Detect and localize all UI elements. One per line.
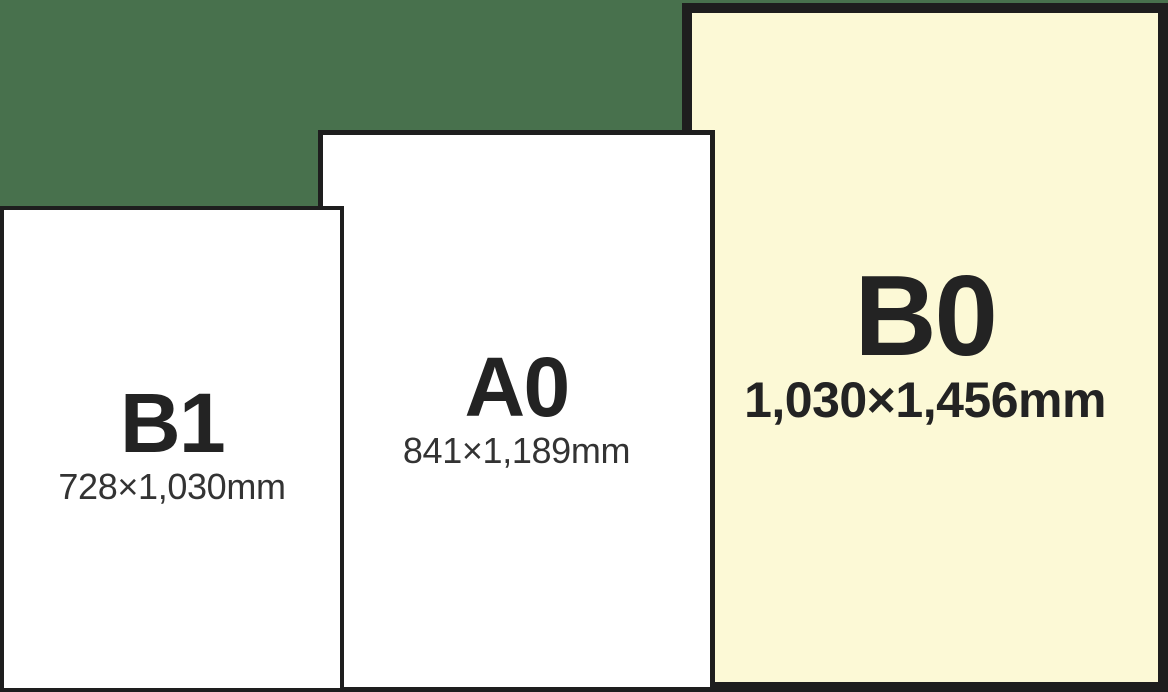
paper-a0-dimensions: 841×1,189mm xyxy=(323,433,710,469)
paper-b1-dimensions: 728×1,030mm xyxy=(4,469,340,505)
paper-b0-dimensions: 1,030×1,456mm xyxy=(692,375,1158,425)
paper-b1: B1 728×1,030mm xyxy=(0,206,344,692)
paper-b1-name: B1 xyxy=(4,381,340,465)
paper-a0: A0 841×1,189mm xyxy=(318,130,715,692)
paper-b0: B0 1,030×1,456mm xyxy=(682,3,1168,692)
paper-size-comparison-diagram: B0 1,030×1,456mm A0 841×1,189mm B1 728×1… xyxy=(0,0,1168,692)
paper-a0-label: A0 841×1,189mm xyxy=(323,345,710,469)
paper-b0-name: B0 xyxy=(692,260,1158,374)
paper-b0-label: B0 1,030×1,456mm xyxy=(692,260,1158,425)
paper-a0-name: A0 xyxy=(323,345,710,429)
paper-b1-label: B1 728×1,030mm xyxy=(4,381,340,505)
